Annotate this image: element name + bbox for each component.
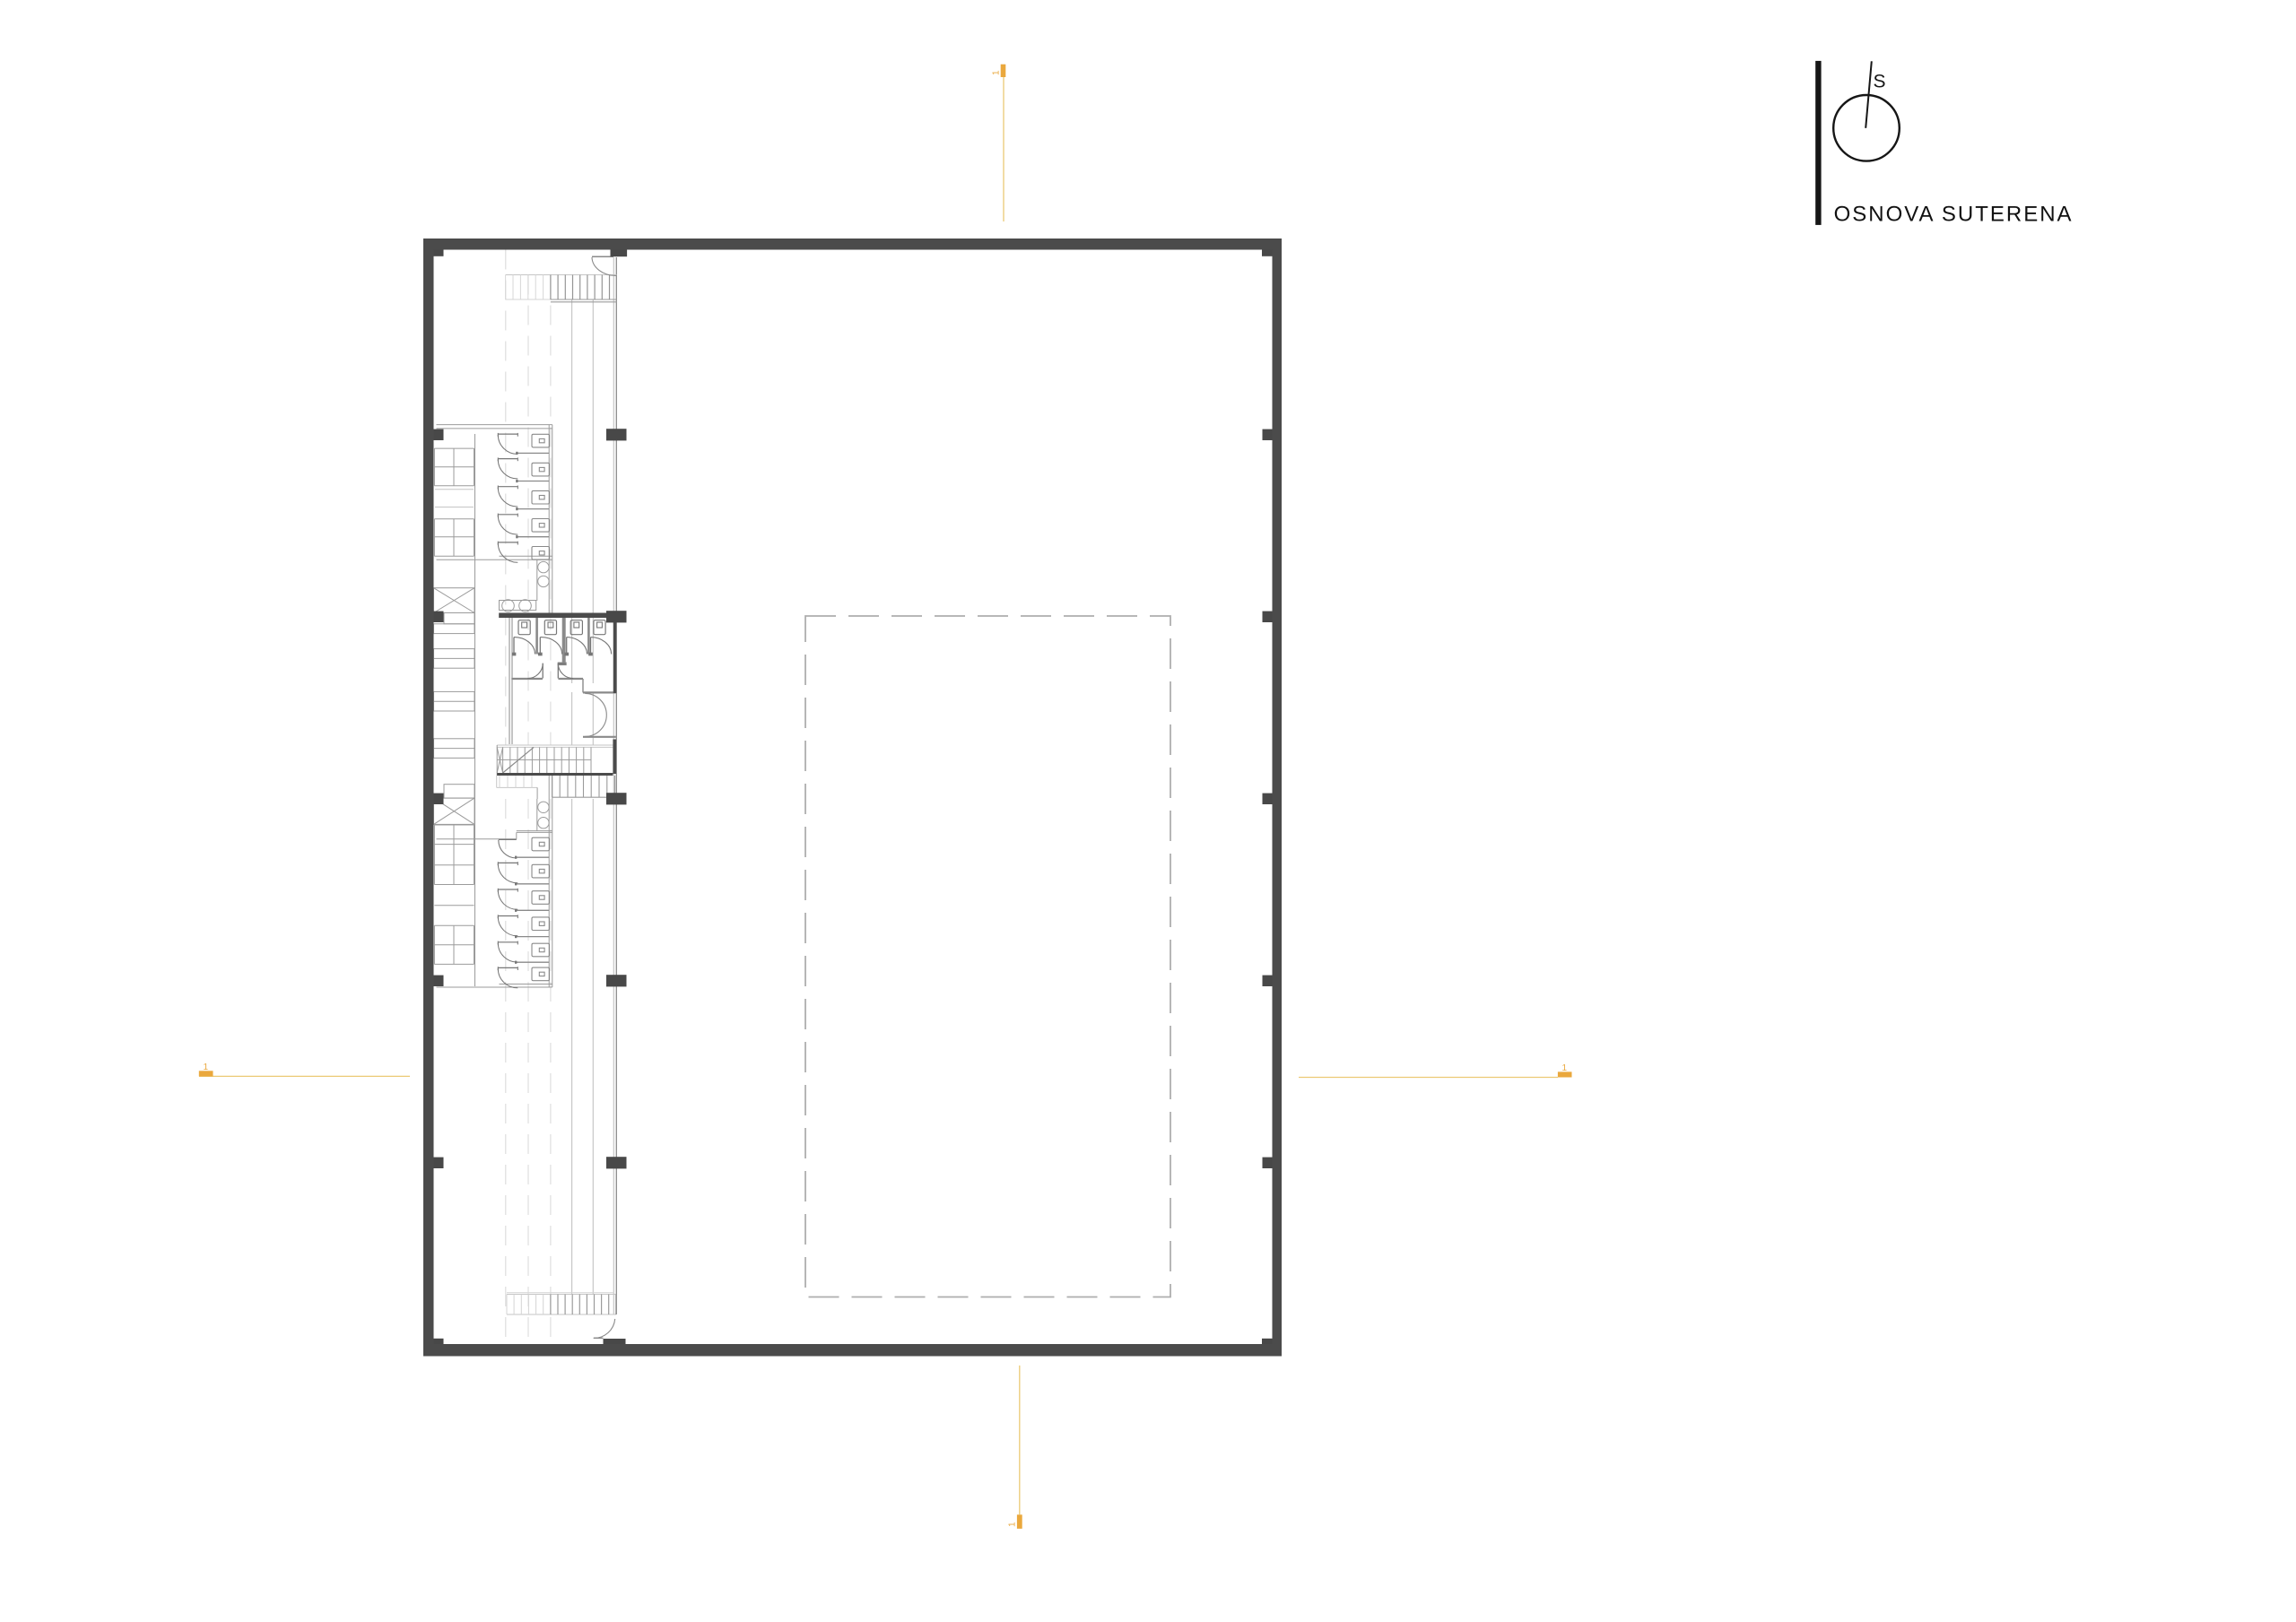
svg-text:1: 1: [992, 70, 1002, 75]
svg-text:1: 1: [1562, 1063, 1568, 1073]
svg-text:1: 1: [204, 1063, 209, 1072]
svg-text:1: 1: [1008, 1522, 1018, 1527]
svg-text:OSNOVA SUTERENA: OSNOVA SUTERENA: [1834, 203, 2074, 227]
svg-text:S: S: [1874, 71, 1886, 91]
